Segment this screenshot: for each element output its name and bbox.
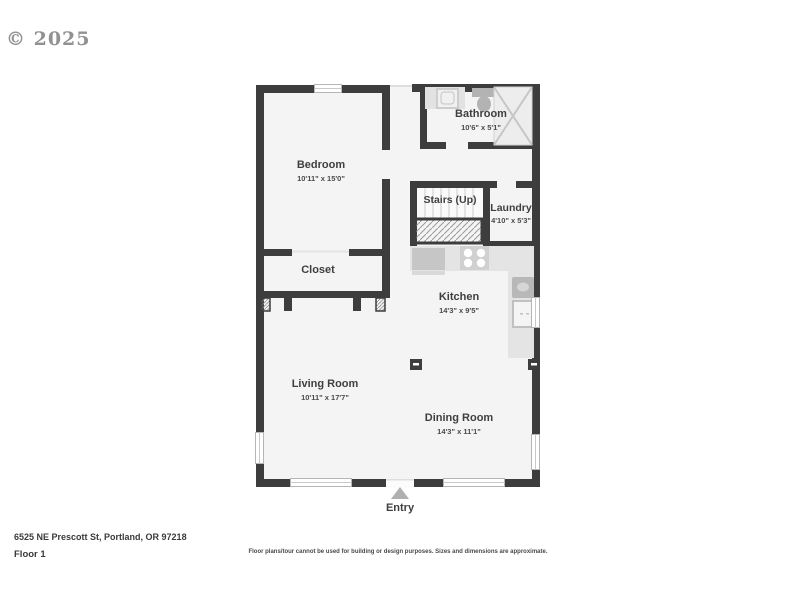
wall-bedroom-right-lower — [382, 179, 390, 298]
living-room-dims: 10'11" x 17'7" — [301, 393, 349, 402]
stairs-hatched-area — [415, 219, 482, 243]
closet-label: Closet — [301, 264, 335, 276]
post-right-dash — [531, 363, 537, 366]
bathroom-label: Bathroom — [455, 108, 507, 120]
post-hatched-left — [261, 298, 270, 311]
entry-threshold-line — [386, 479, 414, 481]
wall-stairs-laundry-divider — [483, 181, 490, 248]
kitchen-dishwasher — [412, 248, 445, 270]
bedroom-label: Bedroom — [297, 159, 346, 171]
kitchen-sink — [512, 277, 534, 298]
floor-plan-drawing: Bedroom 10'11" x 15'0" Bathroom 10'6" x … — [0, 0, 800, 600]
dining-room-dims: 14'3" x 11'1" — [437, 427, 481, 436]
bathroom-dims: 10'6" x 5'1" — [461, 123, 501, 132]
property-address: 6525 NE Prescott St, Portland, OR 97218 — [14, 532, 187, 542]
kitchen-dishwasher-edge — [412, 271, 445, 275]
burner — [464, 259, 472, 267]
toilet-joint — [484, 95, 485, 96]
kitchen-stove — [460, 246, 489, 270]
closet-door-line — [292, 251, 349, 253]
laundry-dims: 4'10" x 5'3" — [491, 216, 531, 225]
fridge-body — [513, 301, 534, 327]
laundry-label: Laundry — [490, 202, 532, 214]
burner — [464, 249, 472, 257]
wall-laundry-top-right — [516, 181, 533, 188]
sink-basin — [517, 283, 529, 292]
bedroom-dims: 10'11" x 15'0" — [297, 174, 345, 183]
entry-label: Entry — [386, 502, 415, 514]
kitchen-fridge — [513, 301, 534, 327]
wall-laundry-top-left — [490, 181, 497, 188]
wall-stairs-top — [410, 181, 487, 188]
kitchen-label: Kitchen — [439, 291, 480, 303]
wall-closet-top-left — [256, 249, 292, 256]
post-left-dash — [413, 363, 419, 366]
disclaimer-text: Floor plans/tour cannot be used for buil… — [248, 549, 547, 555]
kitchen-dims: 14'3" x 9'5" — [439, 306, 479, 315]
wall-left — [256, 85, 264, 487]
dining-room-label: Dining Room — [425, 412, 494, 424]
post-solid-left — [284, 298, 292, 311]
stairs-label: Stairs (Up) — [423, 194, 476, 206]
burner — [477, 259, 485, 267]
wall-closet-bottom — [256, 291, 390, 298]
entry-arrow-icon — [391, 487, 409, 499]
floor-number-label: Floor 1 — [14, 549, 46, 560]
burner — [477, 249, 485, 257]
floor-plan-page: © 2025 — [0, 0, 800, 600]
post-solid-right — [353, 298, 361, 311]
wall-bedroom-right-upper — [382, 85, 390, 150]
wall-closet-top-right — [349, 249, 390, 256]
post-hatched-right — [376, 298, 385, 311]
fridge-mark — [526, 313, 529, 315]
living-room-label: Living Room — [292, 378, 359, 390]
wall-bathroom-bottom-left — [420, 142, 446, 149]
stove-top — [460, 246, 489, 270]
fridge-mark — [520, 313, 523, 315]
hallway-top-opening-line — [390, 85, 412, 87]
